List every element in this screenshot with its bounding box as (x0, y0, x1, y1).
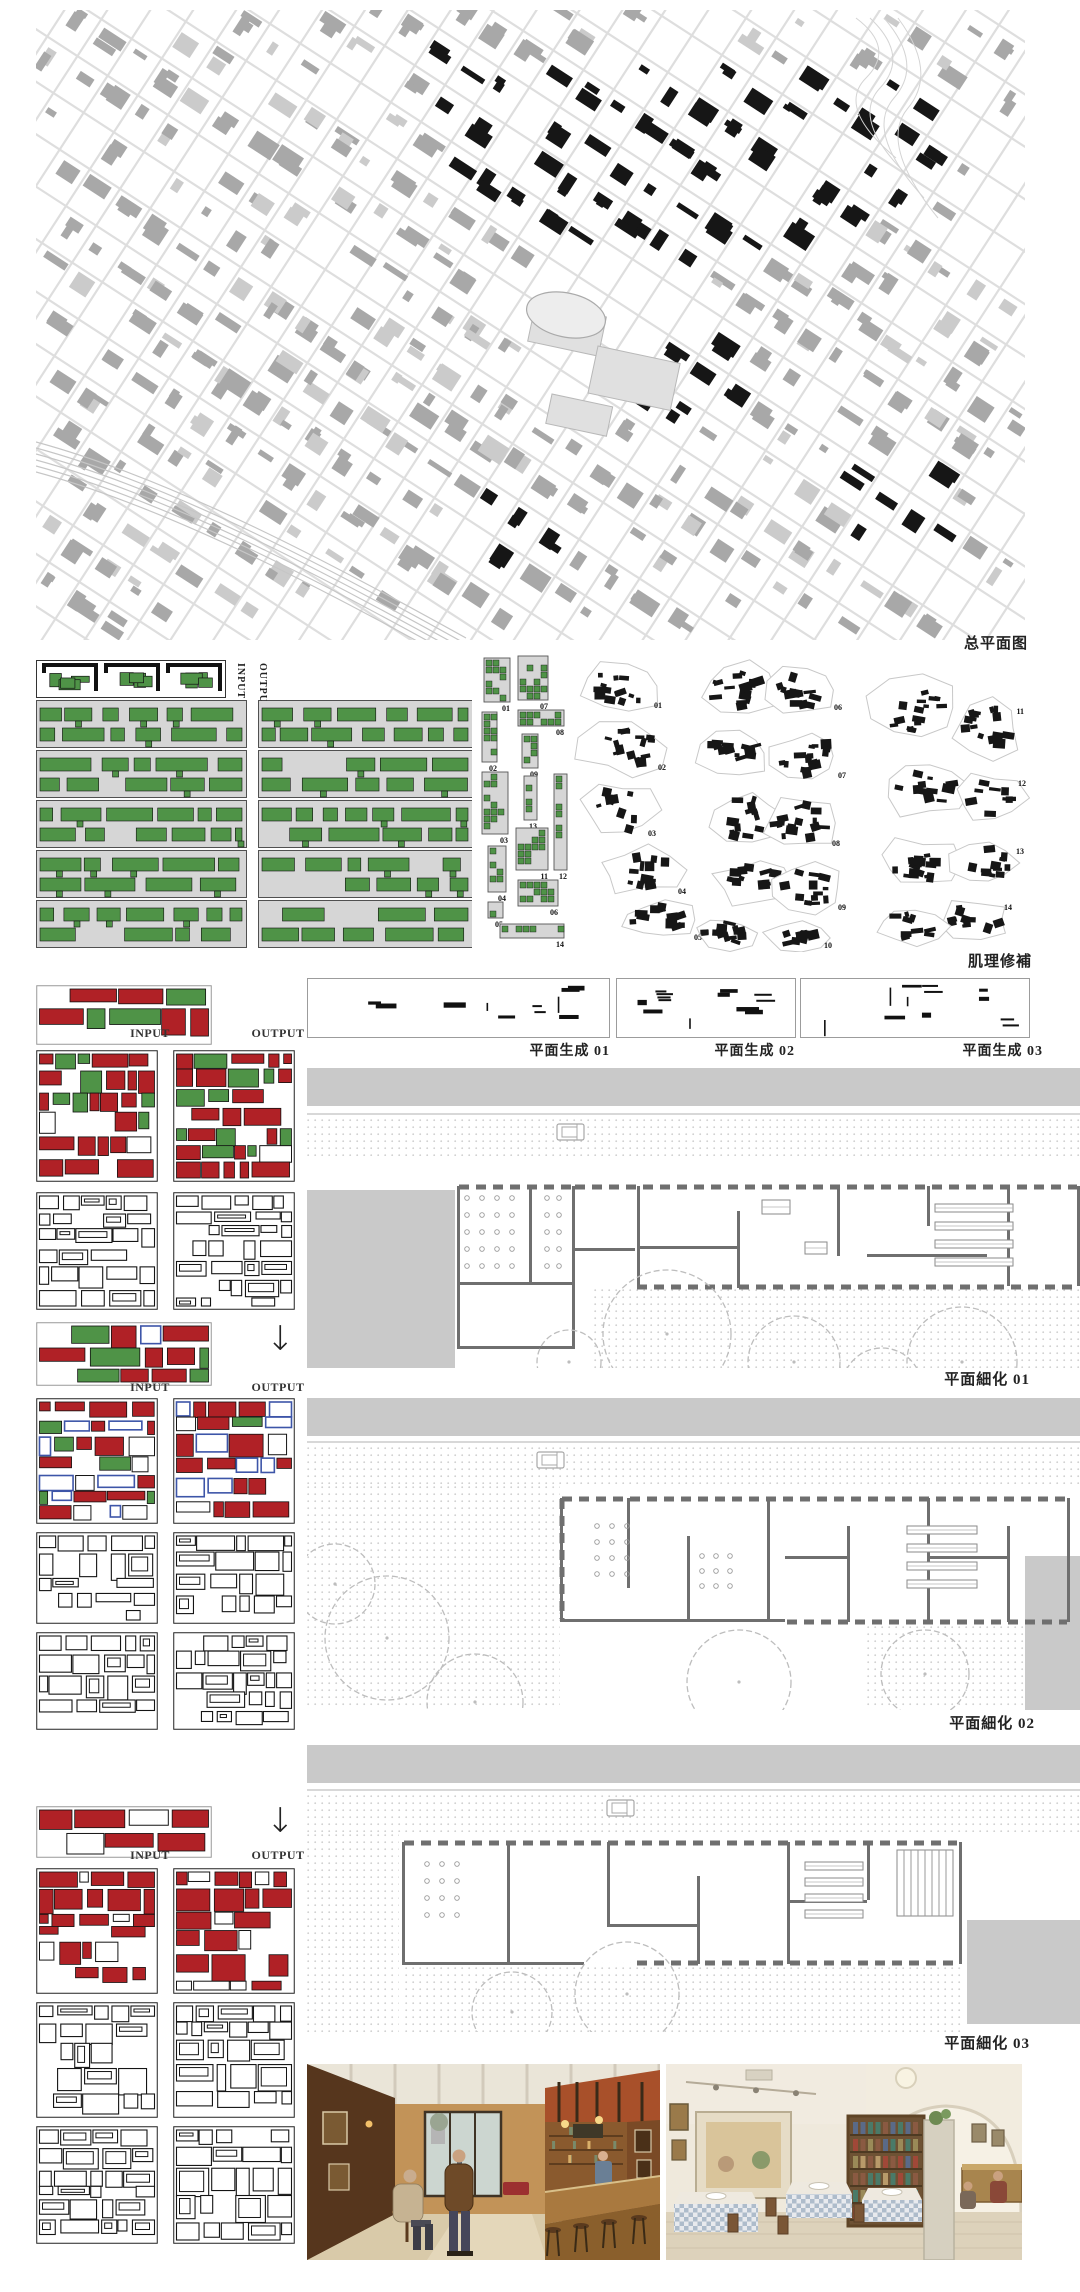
gan-legend-2 (36, 1322, 212, 1386)
outline-panel-1b (173, 1192, 295, 1310)
gan-output-panel-1 (173, 1050, 295, 1182)
svg-text:08: 08 (556, 728, 564, 737)
svg-text:06: 06 (550, 908, 558, 917)
svg-text:07: 07 (838, 771, 846, 780)
output-label-3: OUTPUT (238, 1848, 318, 1863)
tissue-input-label: INPUT (235, 663, 246, 699)
input-label-1: INPUT (110, 1026, 190, 1041)
input-label-2: INPUT (110, 1380, 190, 1395)
outline-panel-2a (36, 1532, 158, 1624)
outline-panel-2b (173, 1532, 295, 1624)
output-label-2: OUTPUT (238, 1380, 318, 1395)
svg-text:01: 01 (502, 704, 510, 713)
down-arrow-icon: ↓ (266, 1804, 295, 1838)
plan-gen-label-2: 平面生成 02 (715, 1040, 796, 1060)
plan-generation-strip-3 (800, 978, 1030, 1038)
svg-text:12: 12 (559, 872, 567, 881)
texture-repair-label: 肌理修補 (968, 950, 1032, 971)
plan-gen-label-1: 平面生成 01 (530, 1040, 611, 1060)
floor-plan-1 (307, 1156, 1080, 1368)
down-arrow-icon: ↓ (266, 1322, 295, 1356)
plan-refine-label-2: 平面細化 02 (949, 1712, 1035, 1733)
svg-text:09: 09 (838, 903, 846, 912)
input-label-3: INPUT (110, 1848, 190, 1863)
gray-band-2 (307, 1398, 1080, 1436)
outline-panel-3d (173, 2126, 295, 2244)
tissue-grid-panel (36, 700, 472, 950)
gray-band-3 (307, 1745, 1080, 1783)
floor-plan-2 (307, 1486, 1080, 1710)
outline-panel-1a (36, 1192, 158, 1310)
outline-panel-3a (36, 2002, 158, 2118)
outline-panel-2d (173, 1632, 295, 1730)
outline-panel-3c (36, 2126, 158, 2244)
gan-output-panel-2 (173, 1398, 295, 1524)
gray-band-1 (307, 1068, 1080, 1106)
svg-text:01: 01 (654, 701, 662, 710)
plan-gen-label-3: 平面生成 03 (963, 1040, 1044, 1060)
paving-strip-1 (307, 1112, 1080, 1156)
outline-panel-2c (36, 1632, 158, 1730)
plan-generation-strip-2 (616, 978, 796, 1038)
svg-text:13: 13 (1016, 847, 1024, 856)
paving-strip-2 (307, 1440, 1080, 1484)
svg-text:06: 06 (834, 703, 842, 712)
plan-refine-label-3: 平面細化 03 (944, 2032, 1030, 2053)
interior-photo-cafe (307, 2064, 660, 2260)
gan-input-panel-2 (36, 1398, 158, 1524)
tissue-legend-panel (36, 660, 226, 698)
svg-text:04: 04 (678, 887, 686, 896)
black-cluster-panel: 0102030405060708091011121314 (574, 648, 1032, 952)
plan-refine-label-1: 平面細化 01 (944, 1368, 1030, 1389)
floor-plan-3 (307, 1834, 1080, 2032)
presentation-board: 总平面图 INPUT OUTPUT 0102030405070809131106… (0, 0, 1080, 2292)
svg-text:08: 08 (832, 839, 840, 848)
svg-text:02: 02 (658, 763, 666, 772)
output-label-1: OUTPUT (238, 1026, 318, 1041)
gan-input-panel-1 (36, 1050, 158, 1182)
svg-text:03: 03 (648, 829, 656, 838)
gan-input-panel-3 (36, 1868, 158, 1994)
plan-generation-strip-1 (307, 978, 610, 1038)
paving-strip-3 (307, 1788, 1080, 1832)
svg-text:12: 12 (1018, 779, 1026, 788)
svg-text:03: 03 (500, 836, 508, 845)
numbered-strip-panel: 01020304050708091311061214 (478, 650, 570, 958)
outline-panel-3b (173, 2002, 295, 2118)
svg-text:14: 14 (556, 940, 564, 949)
svg-text:11: 11 (1016, 707, 1024, 716)
site-plan-map (36, 10, 1025, 640)
gan-output-panel-3 (173, 1868, 295, 1994)
svg-text:14: 14 (1004, 903, 1012, 912)
svg-text:10: 10 (824, 941, 832, 950)
interior-photo-bookshop (666, 2064, 1022, 2260)
